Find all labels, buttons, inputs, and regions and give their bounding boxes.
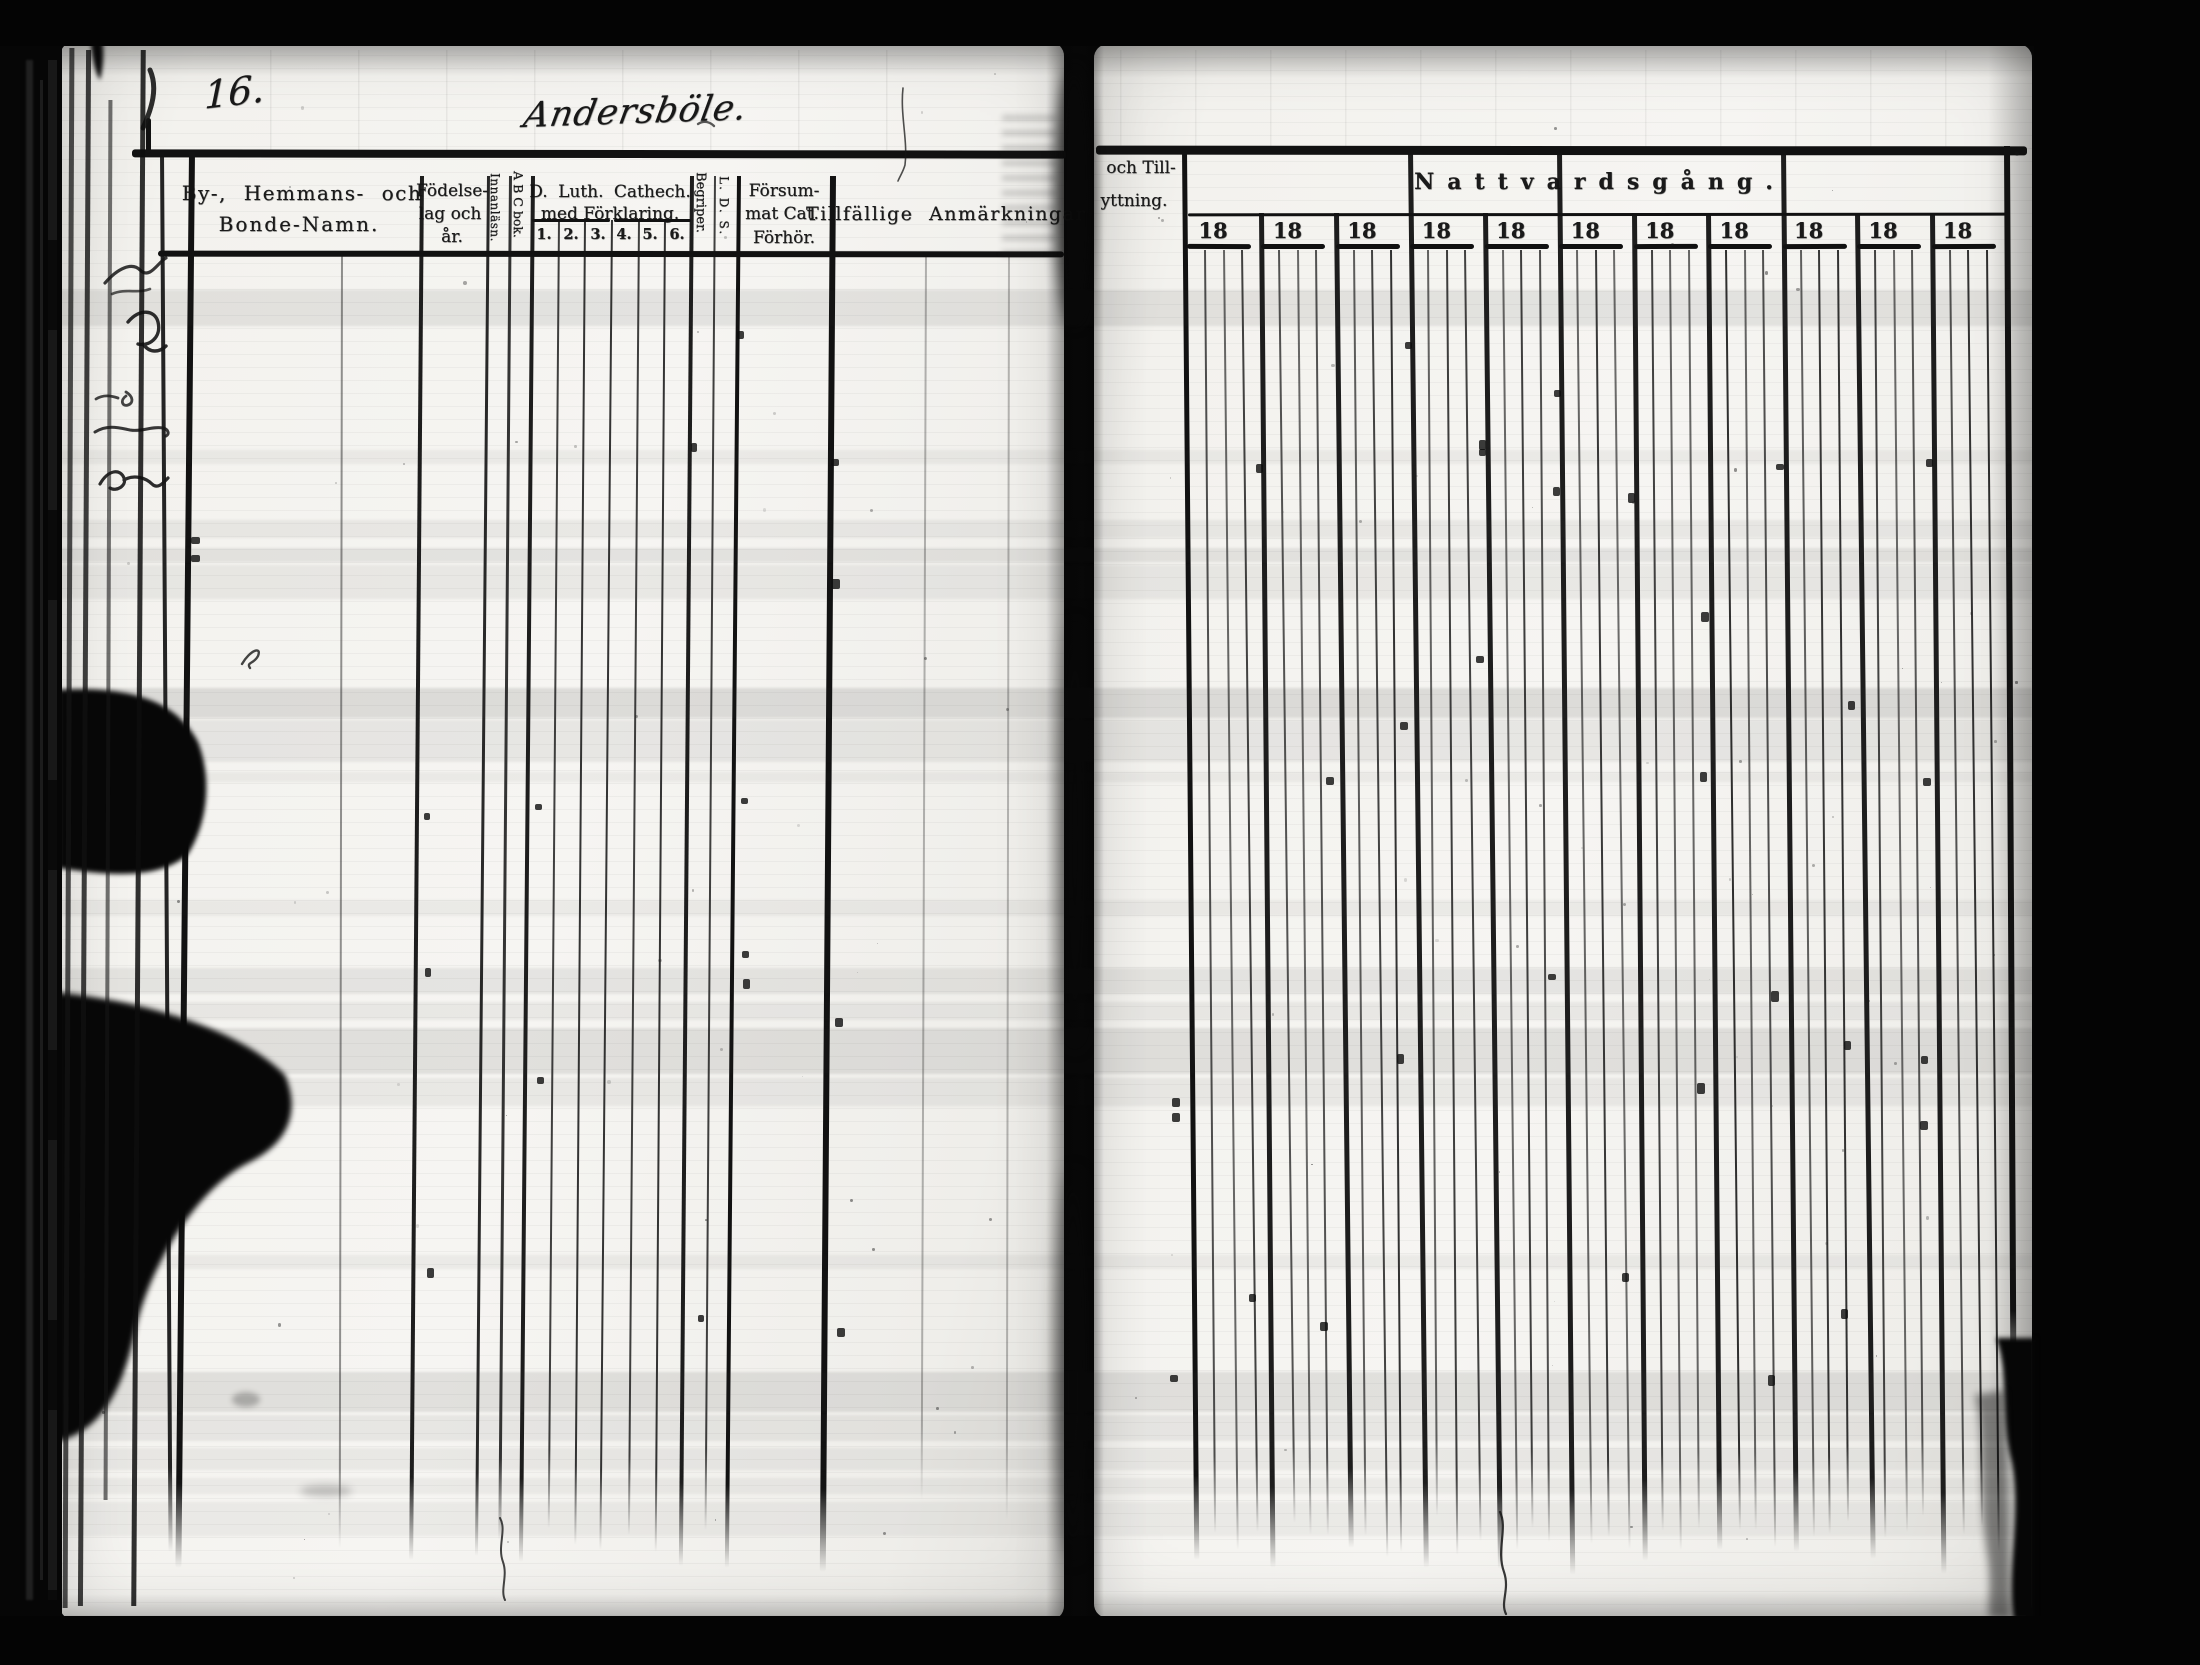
year-label: 18 — [1720, 218, 1749, 243]
film-speck — [724, 236, 727, 239]
film-speck — [1902, 668, 1903, 669]
film-speck — [72, 1425, 74, 1427]
grade-1: 1. — [536, 226, 551, 243]
line-nub — [1921, 1056, 1929, 1064]
film-speck — [1926, 1216, 1929, 1219]
film-speck — [877, 943, 878, 944]
film-speck — [1006, 708, 1009, 711]
line-nub — [1479, 440, 1487, 450]
year-label: 18 — [1422, 218, 1451, 243]
line-nub — [537, 1077, 544, 1085]
film-speck — [1842, 1149, 1844, 1151]
col-name-line1: By-, Hemmans- och — [182, 181, 422, 205]
line-nub — [743, 979, 750, 988]
film-streak — [48, 60, 57, 1600]
col-moving-line1: och Till- — [1106, 158, 1176, 178]
line-nub — [1172, 1098, 1180, 1107]
line-nub — [1256, 464, 1264, 473]
line-nub — [535, 804, 542, 810]
line-nub — [1320, 1322, 1328, 1331]
film-speck — [1311, 1164, 1313, 1166]
year-underline — [1857, 244, 1921, 249]
film-streak — [26, 60, 33, 1600]
film-speck — [921, 111, 924, 114]
line-nub — [1776, 464, 1784, 470]
line-nub — [1554, 390, 1562, 397]
film-speck — [936, 1407, 939, 1410]
line-nub — [831, 579, 840, 589]
line-nub — [831, 459, 840, 466]
grade-3: 3. — [590, 226, 605, 243]
year-label: 18 — [1347, 218, 1376, 243]
line-nub — [191, 555, 200, 562]
line-nub — [1249, 1294, 1257, 1302]
line-nub — [1172, 1113, 1180, 1122]
line-nub — [1326, 777, 1334, 785]
right-edge-shading — [1988, 44, 2034, 1618]
film-speck — [1630, 1526, 1632, 1528]
line-nub — [1553, 487, 1561, 497]
film-speck — [1158, 217, 1160, 219]
col-birth-line2: lag och — [419, 204, 482, 224]
gutter-blot — [1058, 1170, 1088, 1560]
line-nub — [742, 951, 749, 958]
line-nub — [1548, 974, 1556, 981]
film-speck — [1765, 271, 1768, 274]
year-label: 18 — [1943, 218, 1972, 243]
line-nub — [1697, 1083, 1705, 1094]
year-label: 18 — [1645, 218, 1674, 243]
col-begriper-rotated: Begriper. — [693, 172, 708, 233]
film-speck — [954, 1431, 957, 1434]
year-underline — [1410, 244, 1474, 249]
year-label: 18 — [1794, 218, 1823, 243]
line-nub — [1405, 342, 1413, 349]
faint-ruling — [60, 42, 1064, 1620]
film-speck — [574, 445, 577, 448]
line-nub — [741, 798, 748, 804]
film-speck — [635, 715, 638, 718]
film-streak — [40, 80, 43, 1580]
film-speck — [416, 1224, 420, 1228]
film-smear — [300, 1485, 352, 1497]
year-underline — [1336, 244, 1400, 249]
line-nub — [698, 1315, 705, 1322]
grade-5: 5. — [642, 226, 657, 243]
communion-title: Nattvardsgång. — [1414, 169, 1786, 195]
line-nub — [1841, 1309, 1849, 1319]
film-speck — [1632, 501, 1635, 504]
line-nub — [1926, 459, 1934, 468]
page-number: 16. — [204, 66, 265, 118]
film-speck — [1729, 878, 1731, 880]
col-birth-line3: år. — [441, 227, 463, 247]
film-speck — [463, 281, 467, 285]
line-nub — [737, 331, 744, 339]
table-top-rule-left — [132, 149, 1066, 158]
line-nub — [1923, 778, 1931, 785]
film-speck — [143, 848, 146, 851]
line-nub — [1920, 1121, 1928, 1130]
year-label: 18 — [1496, 218, 1525, 243]
film-speck — [1331, 364, 1335, 368]
film-speck — [1516, 945, 1519, 948]
film-speck — [607, 1080, 611, 1084]
line-nub — [425, 968, 432, 977]
film-right-area — [2032, 0, 2200, 1665]
year-underline — [1783, 244, 1847, 249]
col-moving-line2: yttning. — [1101, 191, 1168, 211]
line-nub — [1476, 656, 1484, 663]
film-speck — [1581, 847, 1583, 849]
gutter-blot — [1062, 620, 1088, 1050]
line-nub — [191, 537, 200, 544]
film-speck — [1135, 1397, 1137, 1399]
film-speck — [763, 508, 766, 511]
film-speck — [1868, 1000, 1869, 1001]
film-speck — [825, 1125, 827, 1127]
film-speck — [1554, 127, 1557, 130]
col-name-line2: Bonde-Namn. — [219, 212, 380, 236]
microfilm-scan: 16. Andersböle. By-, Hemmans- och Bonde-… — [0, 0, 2200, 1665]
film-speck — [1746, 1538, 1748, 1540]
film-speck — [1796, 288, 1800, 292]
line-nub — [1848, 701, 1856, 709]
film-speck — [1894, 1062, 1897, 1065]
line-nub — [1768, 1375, 1776, 1385]
col-catechism-line1: D. Luth. Cathech. — [529, 182, 691, 202]
line-nub — [1701, 612, 1709, 623]
film-speck — [301, 106, 304, 109]
film-speck — [1359, 520, 1362, 523]
grades-overline-b — [614, 219, 691, 222]
year-label: 18 — [1571, 218, 1600, 243]
year-label: 18 — [1273, 218, 1302, 243]
col-birth-line1: Födelse- — [416, 181, 488, 201]
col-missed-line1: Försum- — [749, 181, 820, 201]
year-underline — [1931, 244, 1995, 249]
film-speck — [1646, 762, 1648, 764]
col-abc-rotated: A B C bok. — [511, 171, 526, 238]
year-label: 18 — [1198, 218, 1227, 243]
grade-6: 6. — [669, 226, 684, 243]
line-nub — [1622, 1273, 1630, 1282]
grade-4: 4. — [616, 226, 631, 243]
film-smear — [232, 1392, 260, 1407]
year-underline — [1634, 244, 1698, 249]
film-speck — [705, 1219, 707, 1221]
col-reading-rotated: Innanläsn. — [488, 173, 502, 242]
film-bottom-bar — [0, 1616, 2200, 1665]
film-top-bar — [0, 0, 2200, 46]
year-underline — [1708, 244, 1772, 249]
film-speck — [971, 1366, 974, 1369]
year-underline — [1485, 244, 1549, 249]
village-title: Andersböle. — [521, 88, 751, 136]
col-missed-line3: Förhör. — [753, 228, 815, 248]
line-nub — [424, 813, 431, 819]
left-page — [60, 42, 1064, 1620]
film-speck — [1171, 1254, 1173, 1256]
bleedthrough-columns — [1120, 50, 2000, 148]
year-underline — [1187, 244, 1251, 249]
year-underline — [1559, 244, 1623, 249]
film-speck — [1539, 804, 1542, 807]
year-label: 18 — [1868, 218, 1897, 243]
line-nub — [691, 443, 698, 452]
line-nub — [1400, 722, 1408, 730]
gutter-blot — [1056, 66, 1092, 326]
line-nub — [1844, 1041, 1852, 1050]
film-speck — [127, 562, 130, 565]
film-speck — [1435, 939, 1438, 942]
line-nub — [837, 1328, 846, 1337]
film-speck — [1415, 475, 1417, 477]
line-nub — [1397, 1054, 1405, 1065]
line-nub — [1700, 772, 1708, 782]
line-nub — [835, 1018, 844, 1027]
grades-overline-a — [532, 219, 610, 222]
line-nub — [427, 1268, 434, 1278]
year-underline — [1261, 244, 1325, 249]
grade-2: 2. — [563, 226, 578, 243]
film-speck — [335, 482, 337, 484]
outer-corner-stub — [146, 118, 151, 154]
film-speck — [328, 1513, 330, 1515]
col-lds-rotated: L. D. S. — [717, 176, 731, 236]
line-nub — [1771, 991, 1779, 1002]
line-nub — [1170, 1375, 1178, 1382]
film-speck — [1739, 760, 1742, 763]
line-nub — [1479, 449, 1487, 456]
